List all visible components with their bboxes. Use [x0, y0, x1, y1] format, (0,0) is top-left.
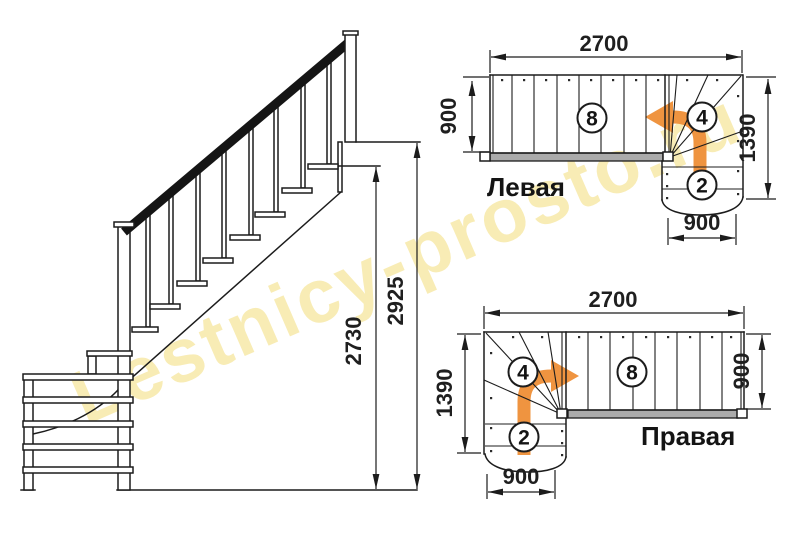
stringer-band	[490, 153, 663, 161]
technical-drawing-svg: 2730 2925	[0, 0, 800, 549]
plan-right-title: Правая	[641, 421, 735, 451]
stringer-band	[568, 410, 738, 418]
step-count-badge-winder: 4	[509, 358, 538, 387]
dimension-label-900-left: 900	[436, 98, 461, 135]
step-count-badge-bottom: 2	[510, 423, 539, 452]
step-count-badge-bottom: 2	[688, 171, 717, 200]
winder-stack	[23, 226, 133, 490]
dimension-label-2700: 2700	[589, 287, 638, 312]
elevation-view: 2730 2925	[21, 31, 420, 490]
step-count-badge-straight: 8	[618, 358, 647, 387]
dimension-label-2700: 2700	[580, 31, 629, 56]
dimension-label-900-right: 900	[729, 353, 754, 390]
treads	[132, 164, 338, 332]
dimension-turn-depth: 1390	[432, 334, 481, 453]
dimension-flight-width: 900	[436, 77, 489, 152]
stair-drawing-canvas: Lestnicy-prosto.ru	[0, 0, 800, 549]
dimension-label-900-bottom: 900	[503, 464, 540, 489]
step-count-2: 2	[696, 175, 708, 198]
dimension-flight-width: 900	[729, 334, 771, 409]
step-count-8: 8	[626, 362, 638, 385]
step-count-badge-straight: 8	[578, 104, 607, 133]
step-count-badge-winder: 4	[688, 103, 717, 132]
plan-view-right: 4 8 2 2700 1390	[432, 287, 771, 499]
dimension-label-900-bottom: 900	[684, 210, 721, 235]
dimension-stair-height: 2730	[341, 167, 376, 489]
dimension-label-1390: 1390	[735, 114, 760, 163]
dimension-label-1390: 1390	[432, 369, 457, 418]
dimension-label-2730: 2730	[341, 317, 366, 366]
step-count-4: 4	[696, 107, 708, 130]
dimension-label-2925: 2925	[383, 277, 408, 326]
dimension-total-width: 2700	[484, 287, 744, 329]
step-count-2: 2	[518, 427, 530, 450]
plan-view-left: 8 4 2 2700 900	[436, 31, 776, 245]
plan-left-title: Левая	[487, 172, 565, 202]
dimension-turn-width: 900	[487, 464, 555, 499]
dimension-turn-depth: 1390	[735, 77, 776, 199]
dimension-total-height: 2925	[383, 143, 417, 489]
dimension-total-width: 2700	[490, 31, 742, 73]
step-count-4: 4	[517, 362, 529, 385]
step-count-8: 8	[586, 108, 598, 131]
dimension-turn-width: 900	[668, 210, 736, 245]
handrail	[124, 42, 349, 232]
stringer-outline	[21, 142, 420, 490]
